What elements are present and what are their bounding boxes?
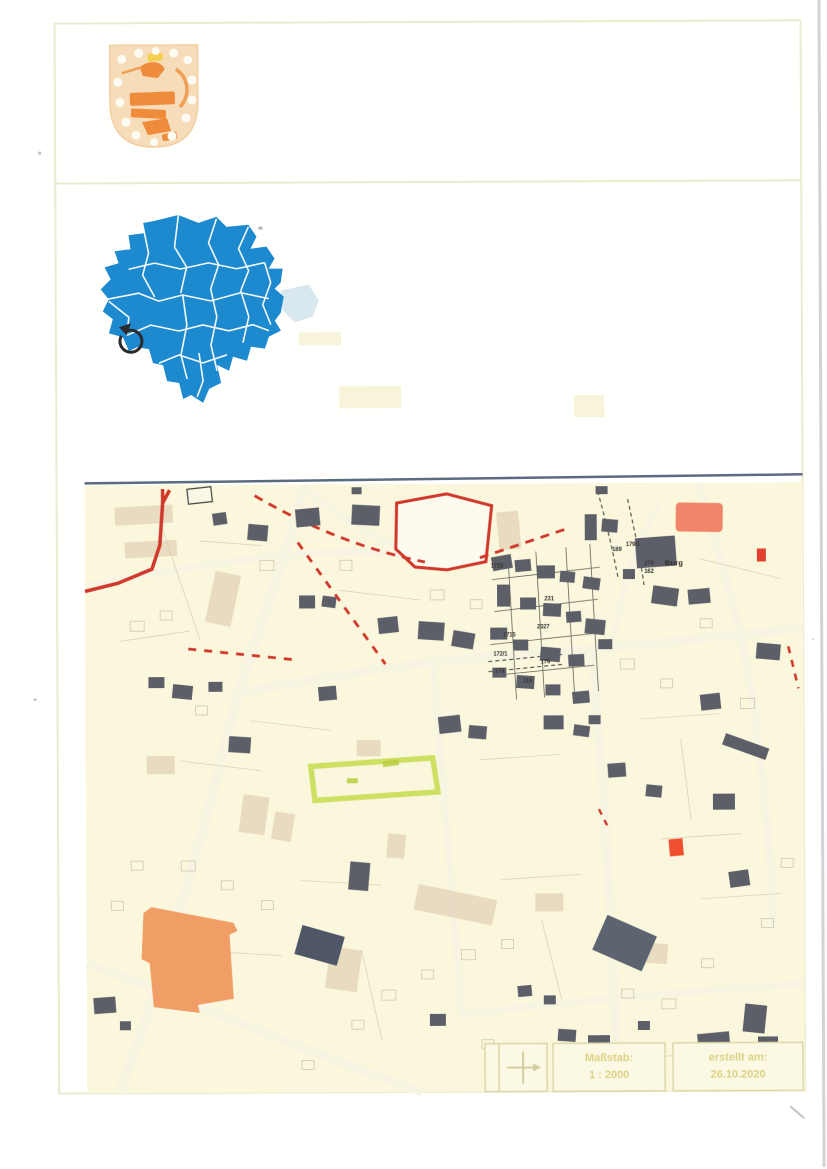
created-cell: erstellt am: 26.10.2020 [675, 1044, 801, 1089]
red-building-small [757, 548, 766, 561]
paper-sheet: 1718 231 2327 1715 172/1 178 119 179 189… [0, 0, 827, 1169]
red-building-small-2 [668, 838, 683, 856]
scale-label: Maßstab: [585, 1052, 633, 1066]
outlined-parcel [187, 487, 212, 505]
district-overview-map [100, 214, 319, 403]
map-artwork [0, 0, 827, 1169]
salmon-building [676, 502, 723, 532]
scale-cell: Maßstab: 1 : 2000 [555, 1045, 663, 1089]
coat-of-arms-icon [110, 45, 198, 147]
cadastral-map [85, 474, 806, 1093]
created-label: erstellt am: [709, 1051, 768, 1065]
orange-large-building [141, 907, 237, 1013]
scanned-map-page: 1718 231 2327 1715 172/1 178 119 179 189… [0, 0, 827, 1169]
ghost-faded-print [299, 331, 604, 418]
scale-value: 1 : 2000 [589, 1069, 629, 1083]
created-value: 26.10.2020 [711, 1068, 766, 1082]
